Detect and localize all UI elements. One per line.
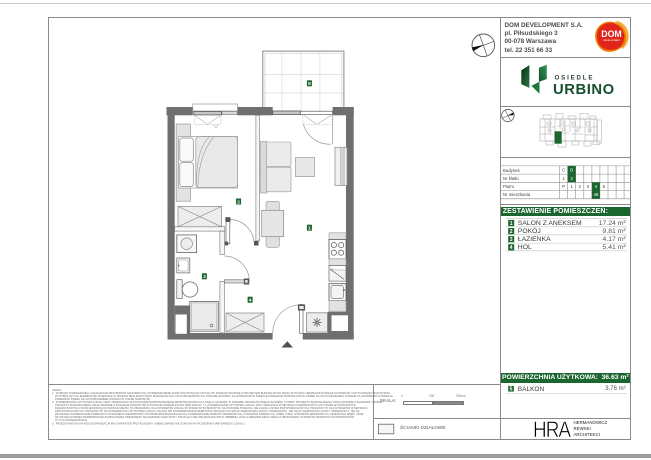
svg-text:1: 1 xyxy=(308,226,311,232)
svg-text:URBINO: URBINO xyxy=(553,82,615,98)
svg-text:2: 2 xyxy=(578,184,581,189)
svg-text:3: 3 xyxy=(510,237,513,243)
svg-text:5: 5 xyxy=(603,184,606,189)
svg-text:3: 3 xyxy=(203,274,206,280)
svg-text:D: D xyxy=(570,168,573,173)
svg-text:1: 1 xyxy=(510,221,513,227)
svg-text:3: 3 xyxy=(587,184,590,189)
svg-text:5: 5 xyxy=(510,387,513,393)
svg-text:2: 2 xyxy=(510,229,513,235)
svg-text:OSIEDLE: OSIEDLE xyxy=(555,74,595,81)
svg-text:4: 4 xyxy=(249,298,252,304)
svg-text:5: 5 xyxy=(308,81,311,87)
svg-text:1: 1 xyxy=(562,176,565,181)
svg-text:DEVELOPMENT: DEVELOPMENT xyxy=(604,40,621,42)
svg-text:46: 46 xyxy=(593,192,598,197)
svg-text:4: 4 xyxy=(510,245,513,251)
svg-text:DOM: DOM xyxy=(601,29,622,39)
svg-text:2: 2 xyxy=(237,199,240,205)
svg-text:P: P xyxy=(562,184,565,189)
svg-text:1: 1 xyxy=(570,184,573,189)
svg-text:C: C xyxy=(562,168,565,173)
